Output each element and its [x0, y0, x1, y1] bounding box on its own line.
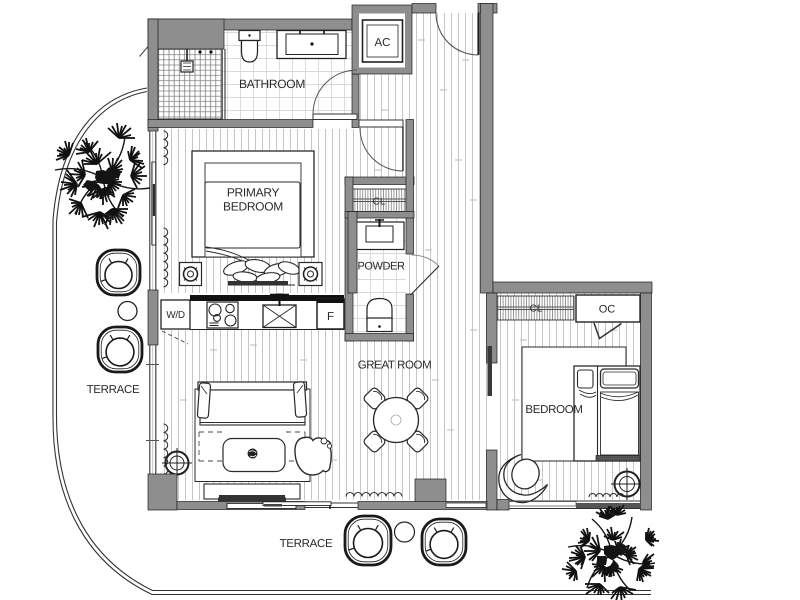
svg-text:GREAT ROOM: GREAT ROOM: [358, 360, 432, 372]
svg-text:PRIMARY: PRIMARY: [227, 186, 280, 200]
svg-text:CL: CL: [373, 197, 386, 208]
svg-text:W/D: W/D: [166, 310, 185, 321]
svg-text:F: F: [327, 311, 334, 323]
svg-text:POWDER: POWDER: [357, 261, 405, 273]
svg-text:AC: AC: [375, 37, 391, 49]
svg-text:BEDROOM: BEDROOM: [525, 404, 582, 416]
svg-text:CL: CL: [530, 304, 543, 315]
svg-text:TERRACE: TERRACE: [87, 384, 140, 396]
svg-text:OC: OC: [599, 304, 616, 316]
svg-text:BATHROOM: BATHROOM: [239, 77, 305, 91]
svg-text:BEDROOM: BEDROOM: [223, 200, 283, 214]
svg-text:TERRACE: TERRACE: [280, 538, 333, 550]
